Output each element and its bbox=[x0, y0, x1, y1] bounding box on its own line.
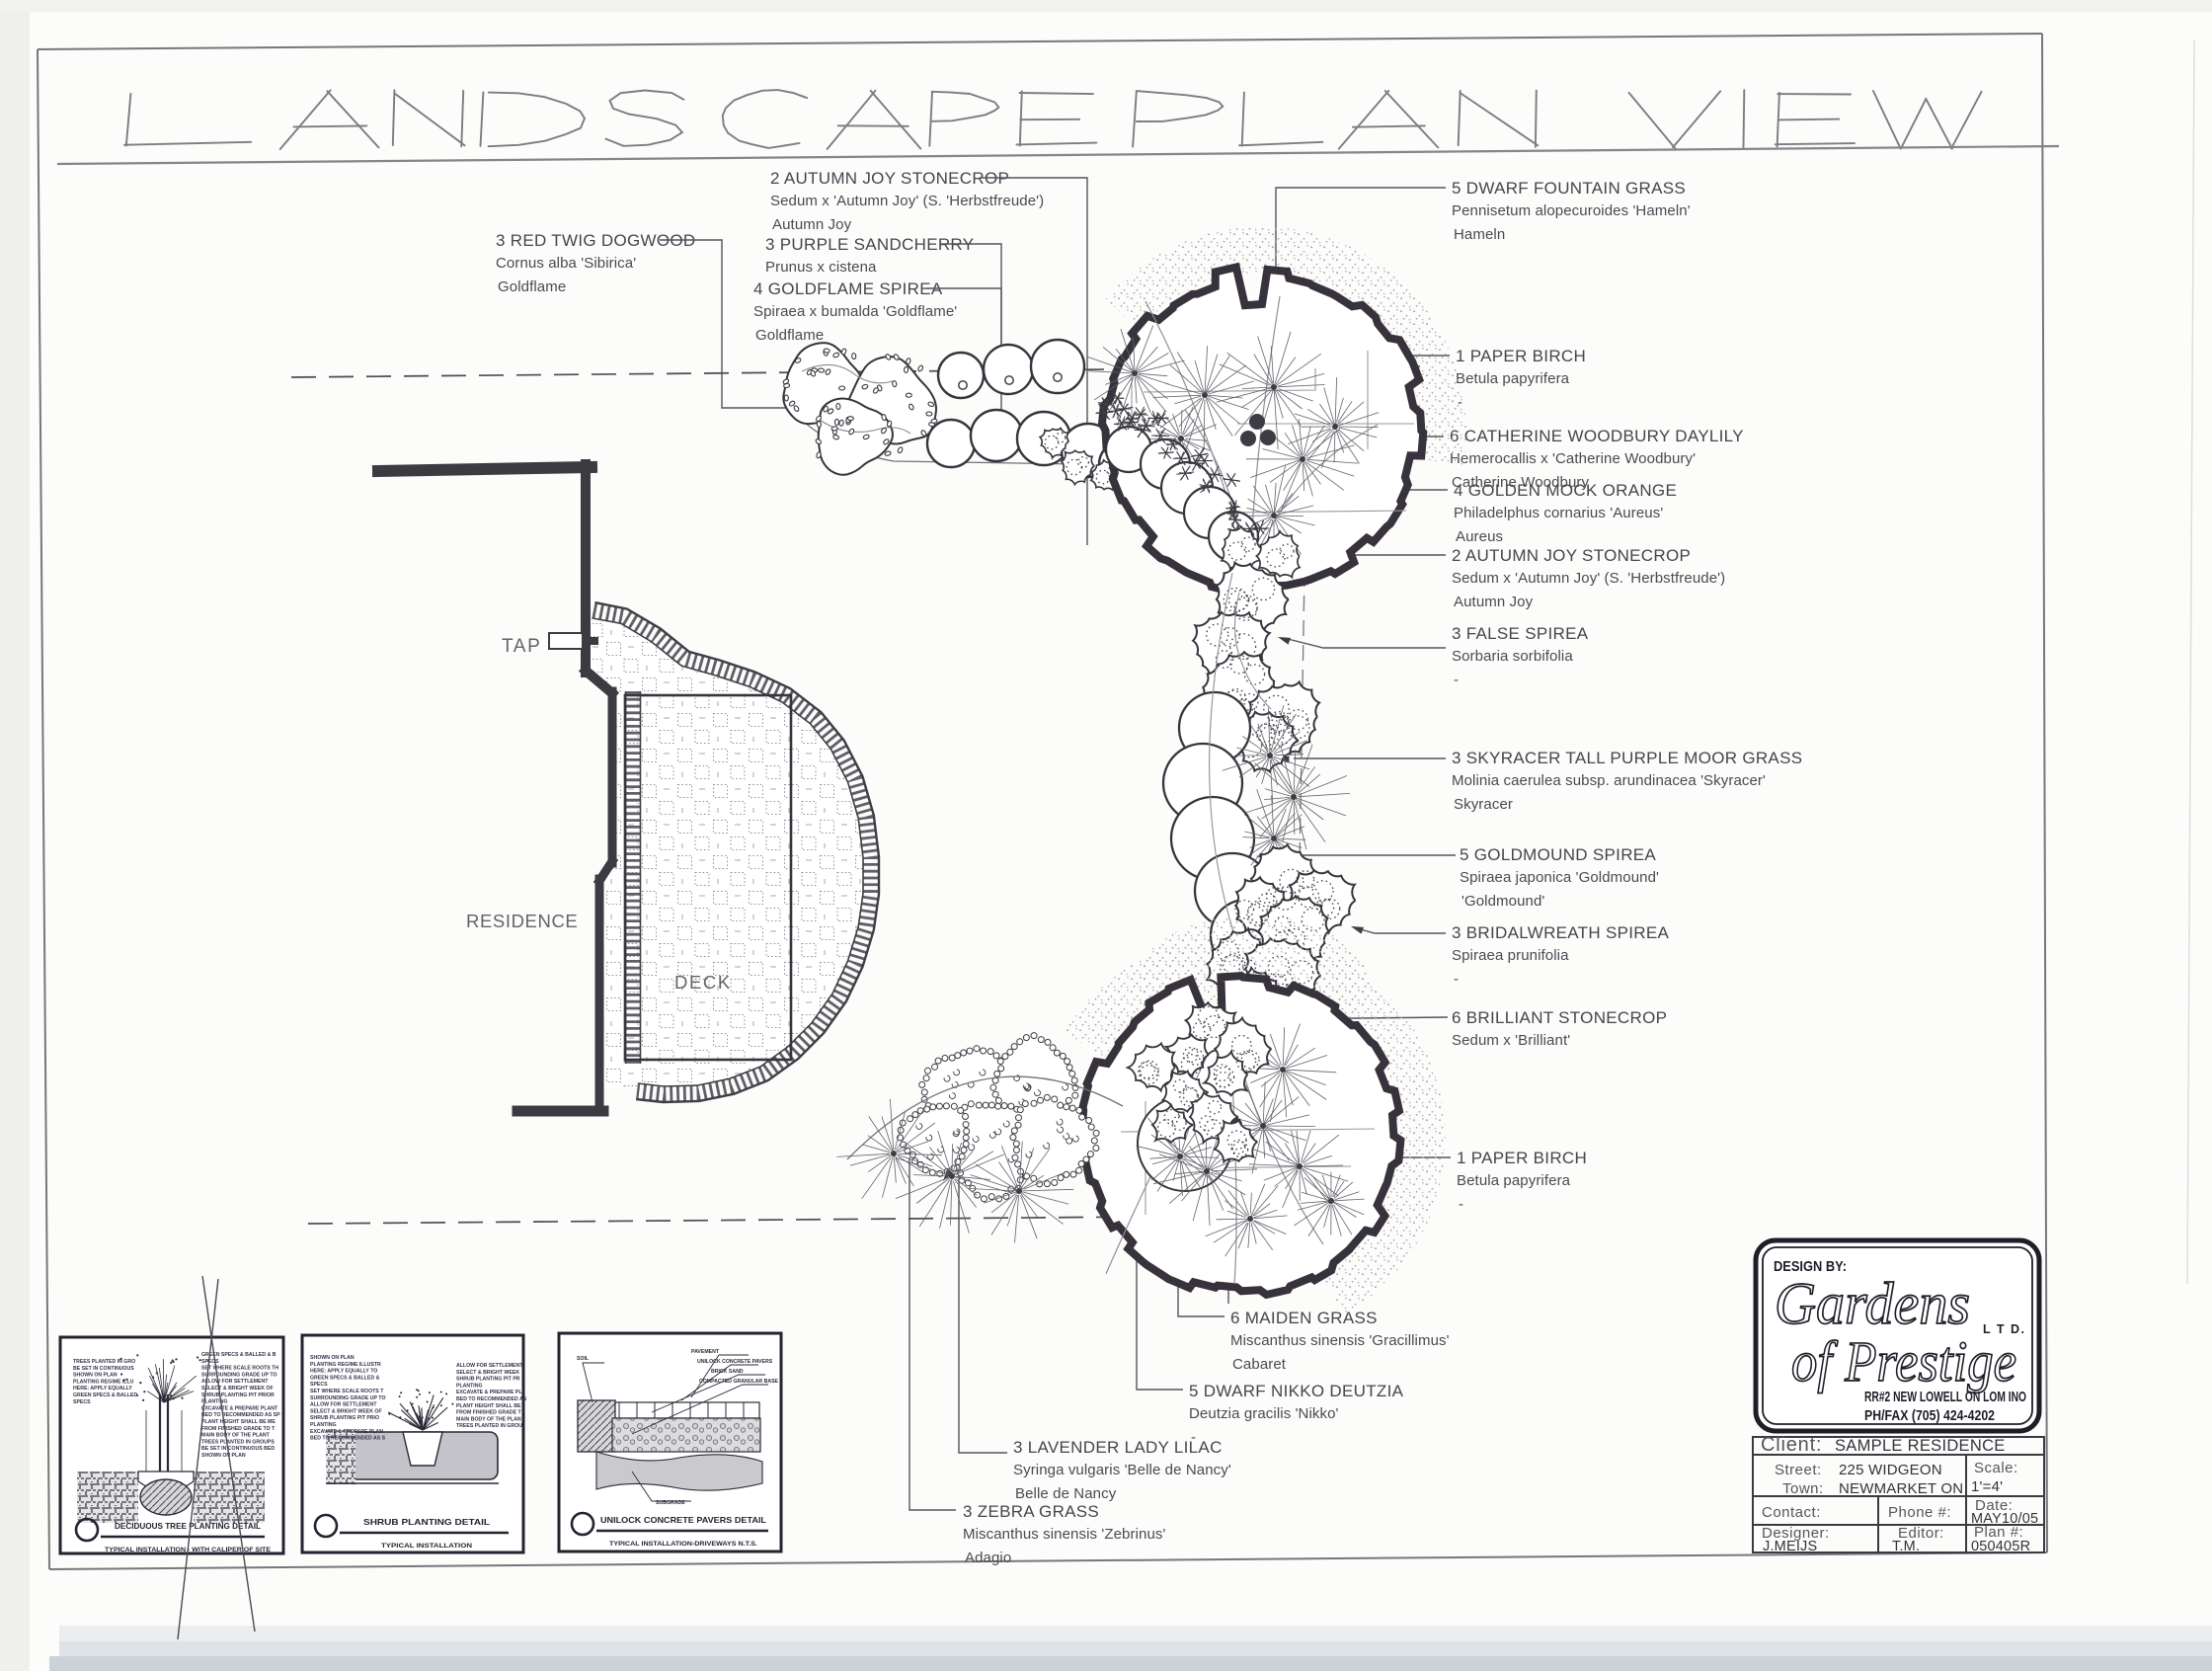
svg-text:'Goldmound': 'Goldmound' bbox=[1461, 893, 1544, 910]
svg-text:J.MEIJS: J.MEIJS bbox=[1763, 1539, 1817, 1554]
svg-text:Sedum x 'Brilliant': Sedum x 'Brilliant' bbox=[1452, 1032, 1570, 1049]
svg-text:1 PAPER BIRCH: 1 PAPER BIRCH bbox=[1456, 347, 1586, 365]
svg-text:4 GOLDEN MOCK ORANGE: 4 GOLDEN MOCK ORANGE bbox=[1454, 481, 1677, 500]
svg-text:2 AUTUMN JOY STONECROP: 2 AUTUMN JOY STONECROP bbox=[1452, 546, 1691, 565]
svg-text:DECK: DECK bbox=[674, 972, 732, 993]
svg-text:Aureus: Aureus bbox=[1456, 528, 1503, 545]
svg-text:4 GOLDFLAME SPIREA: 4 GOLDFLAME SPIREA bbox=[753, 279, 943, 298]
svg-text:Cabaret: Cabaret bbox=[1232, 1356, 1287, 1373]
svg-text:Betula papyrifera: Betula papyrifera bbox=[1456, 370, 1570, 387]
svg-text:PLANTING: PLANTING bbox=[310, 1422, 337, 1428]
svg-text:Betula papyrifera: Betula papyrifera bbox=[1457, 1172, 1571, 1189]
svg-text:SPECS: SPECS bbox=[201, 1359, 219, 1365]
svg-text:SHOWN ON PLAN: SHOWN ON PLAN bbox=[201, 1453, 246, 1459]
svg-text:HERE: APPLY EQUALLY TO: HERE: APPLY EQUALLY TO bbox=[310, 1369, 377, 1375]
svg-text:Goldflame: Goldflame bbox=[498, 278, 566, 295]
svg-text:Prunus x cistena: Prunus x cistena bbox=[765, 259, 877, 276]
svg-text:6 CATHERINE WOODBURY DAYLILY: 6 CATHERINE WOODBURY DAYLILY bbox=[1450, 427, 1744, 445]
svg-text:BED TO RECOMMENDED AS: BED TO RECOMMENDED AS bbox=[456, 1396, 527, 1402]
svg-text:Pennisetum alopecuroides 'Hame: Pennisetum alopecuroides 'Hameln' bbox=[1452, 202, 1691, 219]
svg-text:Belle de Nancy: Belle de Nancy bbox=[1015, 1485, 1117, 1502]
svg-text:Spiraea prunifolia: Spiraea prunifolia bbox=[1452, 947, 1569, 964]
svg-text:2 AUTUMN JOY STONECROP: 2 AUTUMN JOY STONECROP bbox=[770, 169, 1009, 188]
svg-text:ALLOW FOR SETTLEMENT: ALLOW FOR SETTLEMENT bbox=[201, 1379, 269, 1385]
svg-text:Autumn Joy: Autumn Joy bbox=[772, 216, 852, 233]
svg-text:PLANT HEIGHT SHALL BE: PLANT HEIGHT SHALL BE bbox=[456, 1403, 521, 1409]
svg-text:SUBGRADE: SUBGRADE bbox=[656, 1500, 685, 1506]
svg-text:6 BRILLIANT STONECROP: 6 BRILLIANT STONECROP bbox=[1452, 1008, 1667, 1027]
svg-text:L T D.: L T D. bbox=[1983, 1322, 2026, 1336]
svg-text:PLANTING: PLANTING bbox=[201, 1399, 228, 1405]
svg-text:BE SET IN CONTINUOUS: BE SET IN CONTINUOUS bbox=[73, 1366, 134, 1372]
svg-text:Syringa vulgaris 'Belle de Nan: Syringa vulgaris 'Belle de Nancy' bbox=[1013, 1462, 1231, 1478]
svg-text:SOIL: SOIL bbox=[577, 1356, 590, 1362]
svg-text:5 DWARF NIKKO DEUTZIA: 5 DWARF NIKKO DEUTZIA bbox=[1189, 1382, 1404, 1400]
svg-text:PAVEMENT: PAVEMENT bbox=[691, 1349, 720, 1355]
svg-text:EXCAVATE & PREPARE PLAN: EXCAVATE & PREPARE PLAN bbox=[310, 1429, 383, 1435]
svg-text:PH/FAX (705) 424-4202: PH/FAX (705) 424-4202 bbox=[1864, 1407, 1995, 1424]
svg-text:FROM FINISHED GRADE TO T: FROM FINISHED GRADE TO T bbox=[201, 1426, 276, 1432]
svg-text:EXCAVATE & PREPARE PLANT: EXCAVATE & PREPARE PLANT bbox=[201, 1405, 278, 1411]
svg-text:Adagio: Adagio bbox=[965, 1550, 1011, 1566]
svg-text:SELECT & BRIGHT WEEK OF: SELECT & BRIGHT WEEK OF bbox=[201, 1386, 274, 1392]
svg-text:PLANT HEIGHT SHALL BE ME: PLANT HEIGHT SHALL BE ME bbox=[201, 1419, 276, 1425]
svg-text:MAIN BODY OF THE PLAN: MAIN BODY OF THE PLAN bbox=[456, 1416, 521, 1422]
svg-text:Hameln: Hameln bbox=[1454, 226, 1505, 243]
svg-text:-: - bbox=[1459, 1196, 1463, 1213]
svg-text:5 GOLDMOUND SPIREA: 5 GOLDMOUND SPIREA bbox=[1460, 845, 1656, 864]
svg-text:BRICK SAND: BRICK SAND bbox=[711, 1369, 744, 1375]
svg-text:SET WHERE SCALE ROOTS T: SET WHERE SCALE ROOTS T bbox=[310, 1389, 384, 1394]
svg-text:SURROUNDING GRADE UP TO: SURROUNDING GRADE UP TO bbox=[310, 1395, 385, 1401]
svg-text:UNILOCK CONCRETE PAVERS: UNILOCK CONCRETE PAVERS bbox=[697, 1359, 773, 1365]
svg-text:5 DWARF FOUNTAIN GRASS: 5 DWARF FOUNTAIN GRASS bbox=[1452, 179, 1686, 198]
svg-text:Deutzia gracilis 'Nikko': Deutzia gracilis 'Nikko' bbox=[1189, 1405, 1339, 1422]
svg-text:3 ZEBRA GRASS: 3 ZEBRA GRASS bbox=[963, 1502, 1099, 1521]
svg-text:Autumn Joy: Autumn Joy bbox=[1454, 594, 1534, 610]
svg-text:Miscanthus sinensis 'Gracillim: Miscanthus sinensis 'Gracillimus' bbox=[1230, 1332, 1450, 1349]
svg-text:GREEN SPECS & BALLED & B: GREEN SPECS & BALLED & B bbox=[201, 1352, 276, 1358]
svg-text:1'=4': 1'=4' bbox=[1971, 1478, 2003, 1495]
svg-text:-: - bbox=[1454, 971, 1459, 988]
svg-text:BE SET IN CONTINUOUS BED: BE SET IN CONTINUOUS BED bbox=[201, 1446, 275, 1452]
svg-text:3 SKYRACER TALL PURPLE MOOR GR: 3 SKYRACER TALL PURPLE MOOR GRASS bbox=[1452, 749, 1802, 767]
svg-text:SHRUB PLANTING PIT PRIOR: SHRUB PLANTING PIT PRIOR bbox=[201, 1392, 275, 1398]
svg-text:BED TO RECOMMENDED AS SP: BED TO RECOMMENDED AS SP bbox=[201, 1412, 280, 1418]
svg-text:SPECS: SPECS bbox=[73, 1399, 91, 1405]
svg-text:Sedum x 'Autumn Joy' (S. 'Herb: Sedum x 'Autumn Joy' (S. 'Herbstfreude') bbox=[1452, 570, 1725, 587]
svg-text:SPECS: SPECS bbox=[310, 1382, 328, 1388]
svg-text:Spiraea japonica 'Goldmound': Spiraea japonica 'Goldmound' bbox=[1460, 869, 1659, 886]
svg-text:SHRUB PLANTING PIT PRIO: SHRUB PLANTING PIT PRIO bbox=[310, 1415, 379, 1421]
svg-text:SET WHERE SCALE ROOTS TH: SET WHERE SCALE ROOTS TH bbox=[201, 1366, 278, 1372]
svg-text:225 WIDGEON: 225 WIDGEON bbox=[1839, 1462, 1942, 1478]
svg-text:ALLOW FOR SETTLEMENT: ALLOW FOR SETTLEMENT bbox=[310, 1402, 377, 1408]
svg-text:RR#2 NEW LOWELL ON LOM INO: RR#2 NEW LOWELL ON LOM INO bbox=[1864, 1389, 2026, 1405]
svg-text:-: - bbox=[1454, 672, 1459, 688]
svg-text:FROM FINISHED GRADE T: FROM FINISHED GRADE T bbox=[456, 1410, 522, 1416]
svg-text:MAIN BODY OF THE PLANT: MAIN BODY OF THE PLANT bbox=[201, 1433, 271, 1439]
svg-text:ALLOW FOR SETTLEMENT: ALLOW FOR SETTLEMENT bbox=[456, 1363, 523, 1369]
svg-text:PLANTING REGIME ILLUSTR: PLANTING REGIME ILLUSTR bbox=[310, 1362, 381, 1368]
svg-text:SELECT & BRIGHT WEEK OF: SELECT & BRIGHT WEEK OF bbox=[310, 1408, 382, 1414]
svg-text:EXCAVATE & PREPARE PL: EXCAVATE & PREPARE PL bbox=[456, 1390, 522, 1395]
svg-text:PLANTING REGIME ILLU: PLANTING REGIME ILLU bbox=[73, 1379, 134, 1385]
svg-text:1 PAPER BIRCH: 1 PAPER BIRCH bbox=[1457, 1149, 1587, 1167]
svg-text:3 BRIDALWREATH SPIREA: 3 BRIDALWREATH SPIREA bbox=[1452, 923, 1669, 942]
svg-text:SURROUNDING GRADE UP TO: SURROUNDING GRADE UP TO bbox=[201, 1372, 276, 1378]
svg-text:UNILOCK CONCRETE PAVERS DETAIL: UNILOCK CONCRETE PAVERS DETAIL bbox=[600, 1515, 766, 1525]
svg-text:T.M.: T.M. bbox=[1892, 1539, 1920, 1554]
svg-text:COMPACTED GRANULAR BASE: COMPACTED GRANULAR BASE bbox=[699, 1379, 779, 1385]
svg-text:TYPICAL INSTALLATION-DRIVEWAYS: TYPICAL INSTALLATION-DRIVEWAYS N.T.S. bbox=[609, 1541, 757, 1548]
svg-text:Spiraea x bumalda 'Goldflame': Spiraea x bumalda 'Goldflame' bbox=[753, 303, 957, 320]
svg-text:Client:: Client: bbox=[1761, 1434, 1822, 1456]
svg-text:Contact:: Contact: bbox=[1762, 1504, 1821, 1521]
svg-text:TAP: TAP bbox=[502, 636, 541, 657]
svg-text:GREEN SPECS & BALLED &: GREEN SPECS & BALLED & bbox=[310, 1375, 380, 1381]
svg-text:3 LAVENDER LADY LILAC: 3 LAVENDER LADY LILAC bbox=[1013, 1438, 1223, 1457]
svg-text:Town:: Town: bbox=[1782, 1480, 1824, 1497]
svg-text:Skyracer: Skyracer bbox=[1454, 796, 1513, 813]
svg-text:SHOWN ON PLAN: SHOWN ON PLAN bbox=[310, 1355, 355, 1361]
svg-text:Philadelphus cornarius 'Aureus: Philadelphus cornarius 'Aureus' bbox=[1454, 505, 1663, 521]
svg-text:Molinia caerulea subsp. arundi: Molinia caerulea subsp. arundinacea 'Sky… bbox=[1452, 772, 1766, 789]
svg-text:of Prestige: of Prestige bbox=[1791, 1329, 2016, 1393]
svg-text:Sedum x 'Autumn Joy' (S. 'Herb: Sedum x 'Autumn Joy' (S. 'Herbstfreude') bbox=[770, 193, 1044, 209]
svg-text:3 FALSE SPIREA: 3 FALSE SPIREA bbox=[1452, 624, 1589, 643]
svg-text:TREES PLANTED IN GROU: TREES PLANTED IN GROU bbox=[456, 1423, 522, 1429]
svg-text:TREES PLANTED IN GROUPS: TREES PLANTED IN GROUPS bbox=[201, 1439, 275, 1445]
svg-text:NEWMARKET ON: NEWMARKET ON bbox=[1839, 1480, 1963, 1497]
svg-text:050405R: 050405R bbox=[1971, 1539, 2030, 1554]
svg-text:Phone #:: Phone #: bbox=[1888, 1504, 1951, 1521]
svg-text:SAMPLE RESIDENCE: SAMPLE RESIDENCE bbox=[1835, 1437, 2006, 1455]
svg-text:Miscanthus sinensis 'Zebrinus': Miscanthus sinensis 'Zebrinus' bbox=[963, 1526, 1166, 1543]
svg-text:SHOWN ON PLAN: SHOWN ON PLAN bbox=[73, 1373, 118, 1379]
svg-text:SELECT & BRIGHT WEEK: SELECT & BRIGHT WEEK bbox=[456, 1370, 519, 1376]
svg-text:SHRUB PLANTING PIT PR: SHRUB PLANTING PIT PR bbox=[456, 1377, 520, 1383]
svg-text:Cornus alba 'Sibirica': Cornus alba 'Sibirica' bbox=[496, 255, 636, 272]
svg-text:TREES PLANTED IN GRO: TREES PLANTED IN GRO bbox=[73, 1359, 135, 1365]
svg-text:RESIDENCE: RESIDENCE bbox=[466, 911, 578, 931]
svg-text:GREEN SPECS & BALLED: GREEN SPECS & BALLED bbox=[73, 1392, 137, 1398]
svg-text:Hemerocallis x 'Catherine Wood: Hemerocallis x 'Catherine Woodbury' bbox=[1450, 450, 1696, 467]
svg-text:Goldflame: Goldflame bbox=[755, 327, 824, 344]
svg-text:BED TO RECOMMENDED AS S: BED TO RECOMMENDED AS S bbox=[310, 1436, 386, 1442]
svg-text:SHRUB PLANTING DETAIL: SHRUB PLANTING DETAIL bbox=[363, 1517, 490, 1527]
svg-text:HERE: APPLY EQUALLY: HERE: APPLY EQUALLY bbox=[73, 1386, 132, 1392]
svg-text:6 MAIDEN GRASS: 6 MAIDEN GRASS bbox=[1230, 1309, 1378, 1327]
svg-text:Sorbaria sorbifolia: Sorbaria sorbifolia bbox=[1452, 648, 1573, 665]
svg-text:Street:: Street: bbox=[1775, 1462, 1822, 1478]
svg-text:Scale:: Scale: bbox=[1974, 1460, 2018, 1476]
svg-text:PLANTING: PLANTING bbox=[456, 1383, 483, 1389]
svg-text:TYPICAL INSTALLATION: TYPICAL INSTALLATION bbox=[381, 1543, 472, 1550]
svg-text:Gardens: Gardens bbox=[1775, 1271, 1970, 1336]
